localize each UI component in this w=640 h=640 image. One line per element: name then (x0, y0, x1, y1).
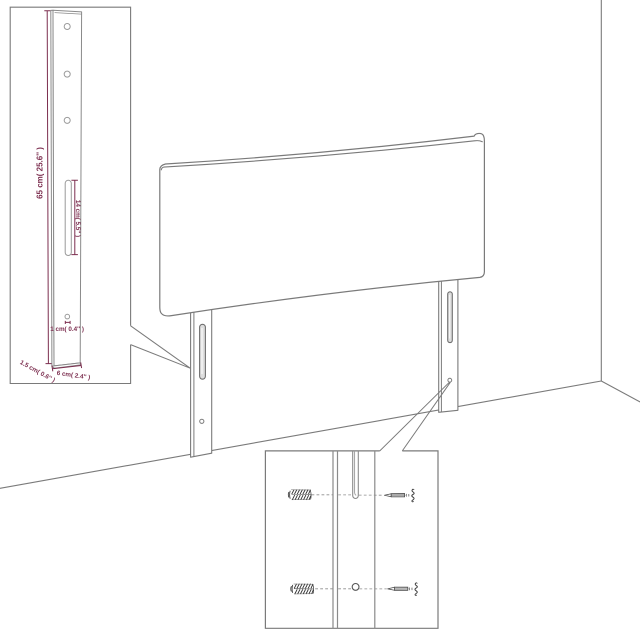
svg-text:65 cm( 25.6'' ): 65 cm( 25.6'' ) (35, 147, 44, 199)
svg-text:14 cm( 5.5'' ): 14 cm( 5.5'' ) (74, 200, 81, 237)
svg-text:1 cm( 0.4'' ): 1 cm( 0.4'' ) (50, 326, 84, 333)
